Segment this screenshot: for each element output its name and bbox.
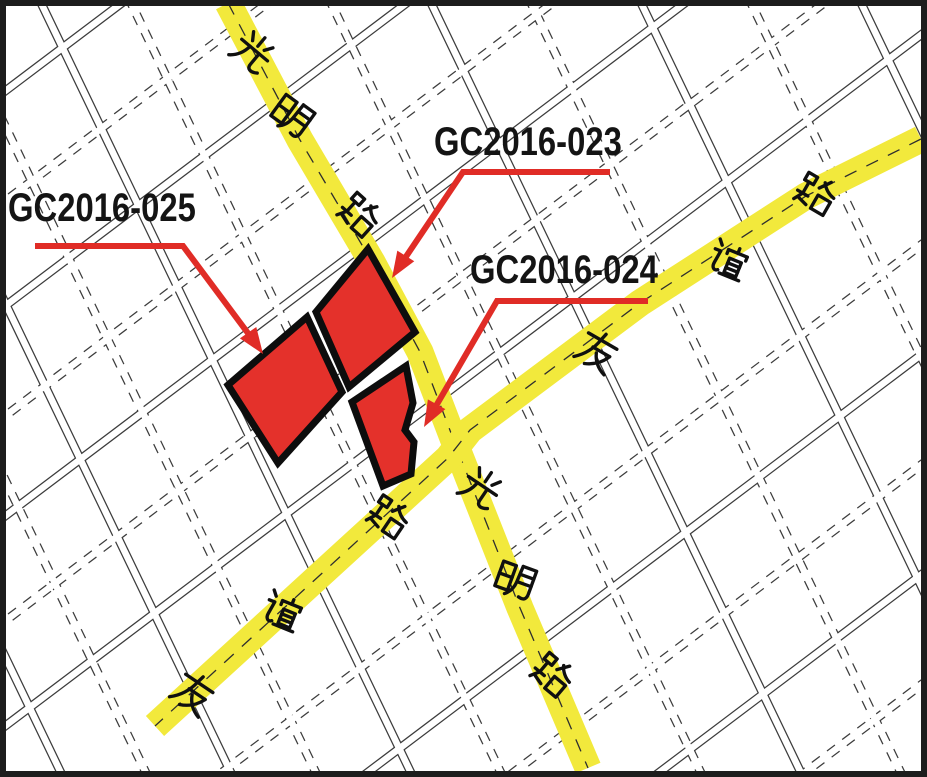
parcel-label-gc2016-024: GC2016-024 xyxy=(470,250,658,290)
leader-arrowhead xyxy=(392,251,414,278)
map-canvas xyxy=(0,0,927,777)
parcel-location-map: GC2016-025 GC2016-023 GC2016-024 xyxy=(0,0,927,777)
street-grid xyxy=(0,0,927,777)
parcel-label-gc2016-025: GC2016-025 xyxy=(8,188,196,228)
parcel-gc2016-024 xyxy=(352,366,414,486)
parcel-label-gc2016-023: GC2016-023 xyxy=(434,122,622,162)
map-frame xyxy=(3,3,924,774)
